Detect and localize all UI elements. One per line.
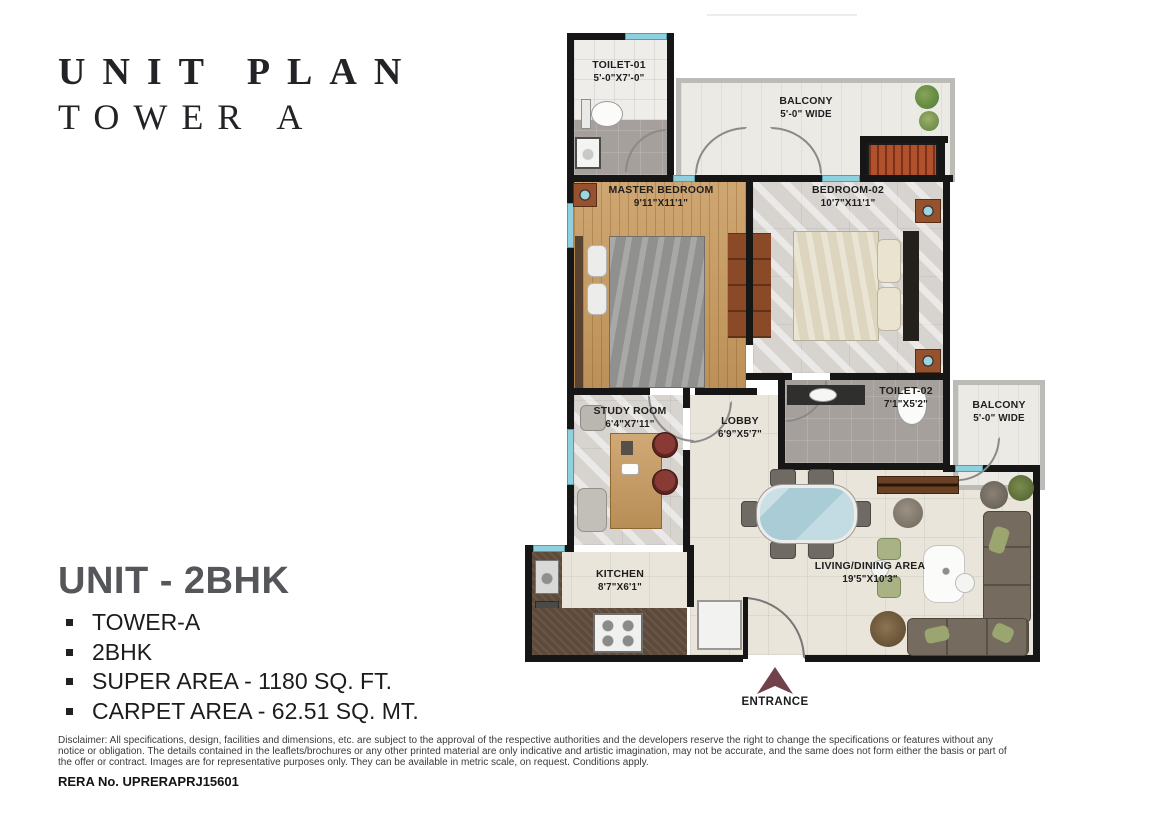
entrance-label: ENTRANCE [717, 696, 833, 708]
room-name: LIVING/DINING AREA [780, 560, 960, 573]
bullet-label: 2BHK [92, 639, 152, 666]
window [567, 203, 574, 248]
wall-segment [746, 373, 792, 380]
room-dims: 19'5"X10'3" [780, 573, 960, 586]
dining-table-icon [757, 485, 857, 543]
stove-icon [593, 613, 643, 653]
wardrobe-icon [753, 233, 771, 338]
room-label-kitchen: KITCHEN 8'7"X6'1" [560, 568, 680, 594]
toilet-tank-icon [581, 99, 591, 129]
window [673, 175, 695, 182]
room-label-toilet1: TOILET-01 5'-0"X7'-0" [571, 59, 667, 85]
floor-plan: TOILET-01 5'-0"X7'-0" BALCONY 5'-0" WIDE… [525, 33, 1045, 665]
page-title-tower: TOWER A [58, 96, 316, 138]
wall-segment [860, 136, 948, 143]
balcony-plant-icon [919, 111, 939, 131]
list-item: 2BHK [58, 638, 419, 668]
room-label-toilet2: TOILET-02 7'1"X5'2" [863, 385, 949, 411]
room-dims: 6'9"X5'7" [695, 428, 785, 441]
unit-bullet-list: TOWER-A 2BHK SUPER AREA - 1180 SQ. FT. C… [58, 608, 419, 726]
wall-segment [667, 33, 674, 182]
room-name: STUDY ROOM [577, 405, 683, 418]
list-item: SUPER AREA - 1180 SQ. FT. [58, 667, 419, 697]
list-item: CARPET AREA - 62.51 SQ. MT. [58, 697, 419, 727]
wall-segment [830, 373, 950, 380]
room-name: MASTER BEDROOM [581, 184, 741, 197]
pillow-icon [877, 287, 901, 331]
wall-segment [567, 175, 953, 182]
desk-item-icon [621, 463, 639, 475]
bed-icon [793, 231, 879, 341]
bed-headboard-icon [903, 231, 919, 341]
room-name: BALCONY [701, 95, 911, 108]
bullet-icon [66, 708, 73, 715]
room-label-lobby: LOBBY 6'9"X5'7" [695, 415, 785, 441]
wall-segment [695, 388, 757, 395]
room-name: BEDROOM-02 [768, 184, 928, 197]
room-label-bedroom2: BEDROOM-02 10'7"X11'1" [768, 184, 928, 210]
basket-table-icon [870, 611, 906, 647]
room-dims: 6'4"X7'11" [577, 418, 683, 431]
list-item: TOWER-A [58, 608, 419, 638]
window [822, 175, 860, 182]
room-dims: 10'7"X11'1" [768, 197, 928, 210]
bullet-label: SUPER AREA - 1180 SQ. FT. [92, 668, 392, 695]
balcony-plant-icon [915, 85, 939, 109]
bed-icon [609, 236, 705, 388]
bullet-icon [66, 678, 73, 685]
pillow-icon [877, 239, 901, 283]
fridge-icon [697, 600, 742, 650]
disclaimer-text: Disclaimer: All specifications, design, … [58, 736, 1020, 769]
bullet-label: TOWER-A [92, 609, 200, 636]
entrance-door-leaf [743, 597, 748, 659]
study-chair-red-icon [652, 432, 678, 458]
room-label-living: LIVING/DINING AREA 19'5"X10'3" [780, 560, 960, 586]
window [567, 429, 574, 485]
wall-segment [943, 175, 950, 470]
bullet-label: CARPET AREA - 62.51 SQ. MT. [92, 698, 419, 725]
unit-title: UNIT - 2BHK [58, 560, 289, 603]
wardrobe-icon [728, 233, 746, 338]
wall-segment [525, 655, 743, 662]
page-title-unit-plan: UNIT PLAN [58, 50, 418, 94]
room-dims: 5'-0"X7'-0" [571, 72, 667, 85]
tv-console-icon [877, 476, 959, 494]
pillow-icon [587, 283, 607, 315]
room-label-study: STUDY ROOM 6'4"X7'11" [577, 405, 683, 431]
room-label-balcony-right: BALCONY 5'-0" WIDE [958, 399, 1040, 425]
pillow-icon [587, 245, 607, 277]
room-dims: 5'-0" WIDE [958, 412, 1040, 425]
bed-headboard-icon [575, 236, 583, 388]
top-divider-rule [707, 14, 857, 16]
kitchen-sink-icon [535, 560, 559, 594]
study-chair-red-icon [652, 469, 678, 495]
dining-chair-icon [808, 541, 834, 559]
room-name: TOILET-01 [571, 59, 667, 72]
plant-icon [1008, 475, 1034, 501]
room-name: BALCONY [958, 399, 1040, 412]
wall-segment [683, 450, 690, 552]
ottoman-icon [893, 498, 923, 528]
room-label-master-bedroom: MASTER BEDROOM 9'11"X11'1" [581, 184, 741, 210]
washbasin-icon [575, 137, 601, 169]
room-label-balcony-top: BALCONY 5'-0" WIDE [701, 95, 911, 121]
wall-segment [746, 182, 753, 345]
wall-segment [525, 545, 532, 662]
entrance-arrow-icon [757, 667, 793, 694]
room-name: LOBBY [695, 415, 785, 428]
window [533, 545, 565, 552]
room-name: TOILET-02 [863, 385, 949, 398]
bullet-icon [66, 649, 73, 656]
window [625, 33, 667, 40]
wall-segment [567, 388, 650, 395]
toilet-wc-icon [591, 101, 623, 127]
side-table-round-icon [980, 481, 1008, 509]
wall-segment [1033, 465, 1040, 662]
room-name: KITCHEN [560, 568, 680, 581]
sofa-icon [983, 511, 1031, 623]
room-dims: 8'7"X6'1" [560, 581, 680, 594]
dining-chair-icon [770, 541, 796, 559]
sofa-chair-icon [577, 488, 607, 532]
desk-item-icon [621, 441, 633, 455]
wall-segment [687, 545, 694, 607]
room-dims: 5'-0" WIDE [701, 108, 911, 121]
room-dims: 9'11"X11'1" [581, 197, 741, 210]
washbasin-icon [809, 388, 837, 402]
rera-number: RERA No. UPRERAPRJ15601 [58, 774, 239, 789]
room-dims: 7'1"X5'2" [863, 398, 949, 411]
wall-segment [778, 463, 950, 470]
side-table-icon [915, 349, 941, 373]
bullet-icon [66, 619, 73, 626]
accent-chair-icon [877, 538, 901, 560]
wall-segment [805, 655, 1040, 662]
